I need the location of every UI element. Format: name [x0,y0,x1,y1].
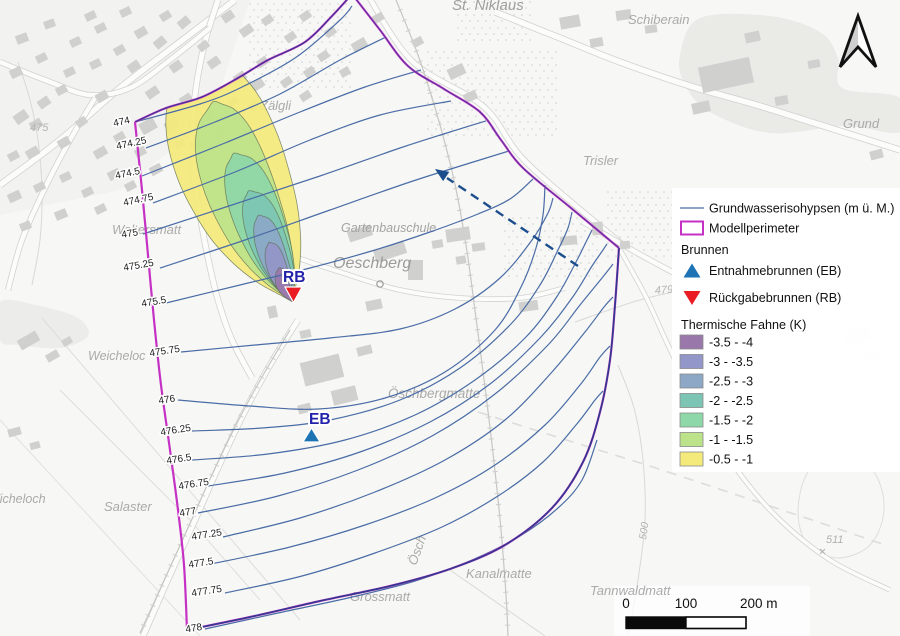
svg-text:-3 - -3.5: -3 - -3.5 [709,355,753,369]
svg-text:500: 500 [637,521,651,540]
svg-text:Thermische Fahne (K): Thermische Fahne (K) [681,318,806,332]
svg-text:100: 100 [675,596,698,611]
svg-text:EB: EB [309,411,331,428]
svg-text:-2.5 - -3: -2.5 - -3 [709,375,753,389]
svg-text:St. Niklaus: St. Niklaus [452,0,524,14]
svg-text:-1.5 - -2: -1.5 - -2 [709,414,753,428]
svg-text:Rückgabebrunnen (RB): Rückgabebrunnen (RB) [709,291,841,305]
svg-text:Grundwasserisohypsen (m ü. M.): Grundwasserisohypsen (m ü. M.) [709,202,894,216]
svg-text:Brunnen: Brunnen [681,243,729,257]
svg-text:479: 479 [654,284,673,297]
svg-text:200 m: 200 m [740,596,778,611]
svg-text:511: 511 [826,534,844,546]
svg-text:Weicheloc: Weicheloc [88,349,146,363]
svg-text:Modellperimeter: Modellperimeter [709,222,799,236]
svg-text:Salaster: Salaster [104,499,152,514]
svg-text:-1 - -1.5: -1 - -1.5 [709,433,753,447]
svg-text:Grund: Grund [843,116,880,131]
svg-text:Kanalmatte: Kanalmatte [466,566,532,581]
svg-text:-2 - -2.5: -2 - -2.5 [709,394,753,408]
svg-text:RB: RB [283,269,305,286]
svg-text:Gartenbauschule: Gartenbauschule [341,221,436,235]
svg-text:0: 0 [622,596,630,611]
svg-text:Schiberain: Schiberain [628,12,689,27]
svg-text:-0.5 - -1: -0.5 - -1 [709,453,753,467]
svg-text:-3.5 - -4: -3.5 - -4 [709,336,753,350]
svg-text:475: 475 [30,122,49,134]
svg-text:Trisler: Trisler [583,153,619,168]
svg-text:Wicheloch: Wicheloch [0,492,46,506]
svg-text:Grossmatt: Grossmatt [350,589,411,604]
svg-text:Tannwaldmatt: Tannwaldmatt [590,583,672,598]
svg-text:Oeschberg: Oeschberg [333,255,411,272]
svg-text:Entnahmebrunnen (EB): Entnahmebrunnen (EB) [709,264,841,278]
